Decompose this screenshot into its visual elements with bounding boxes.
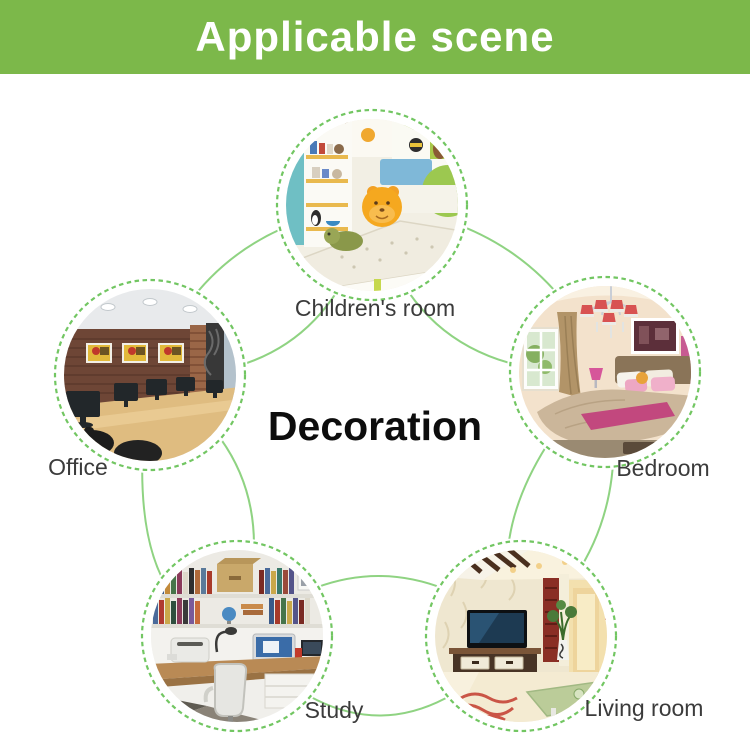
scene-label-living-room: Living room <box>585 695 704 722</box>
header-banner: Applicable scene <box>0 0 750 74</box>
infographic: Applicable scene <box>0 0 750 750</box>
center-title: Decoration <box>268 403 482 450</box>
scene-label-study: Study <box>305 697 364 724</box>
scene-label-children-room: Children's room <box>295 295 455 322</box>
scene-label-bedroom: Bedroom <box>616 455 709 482</box>
scene-label-office: Office <box>48 454 108 481</box>
page-title: Applicable scene <box>195 13 554 61</box>
